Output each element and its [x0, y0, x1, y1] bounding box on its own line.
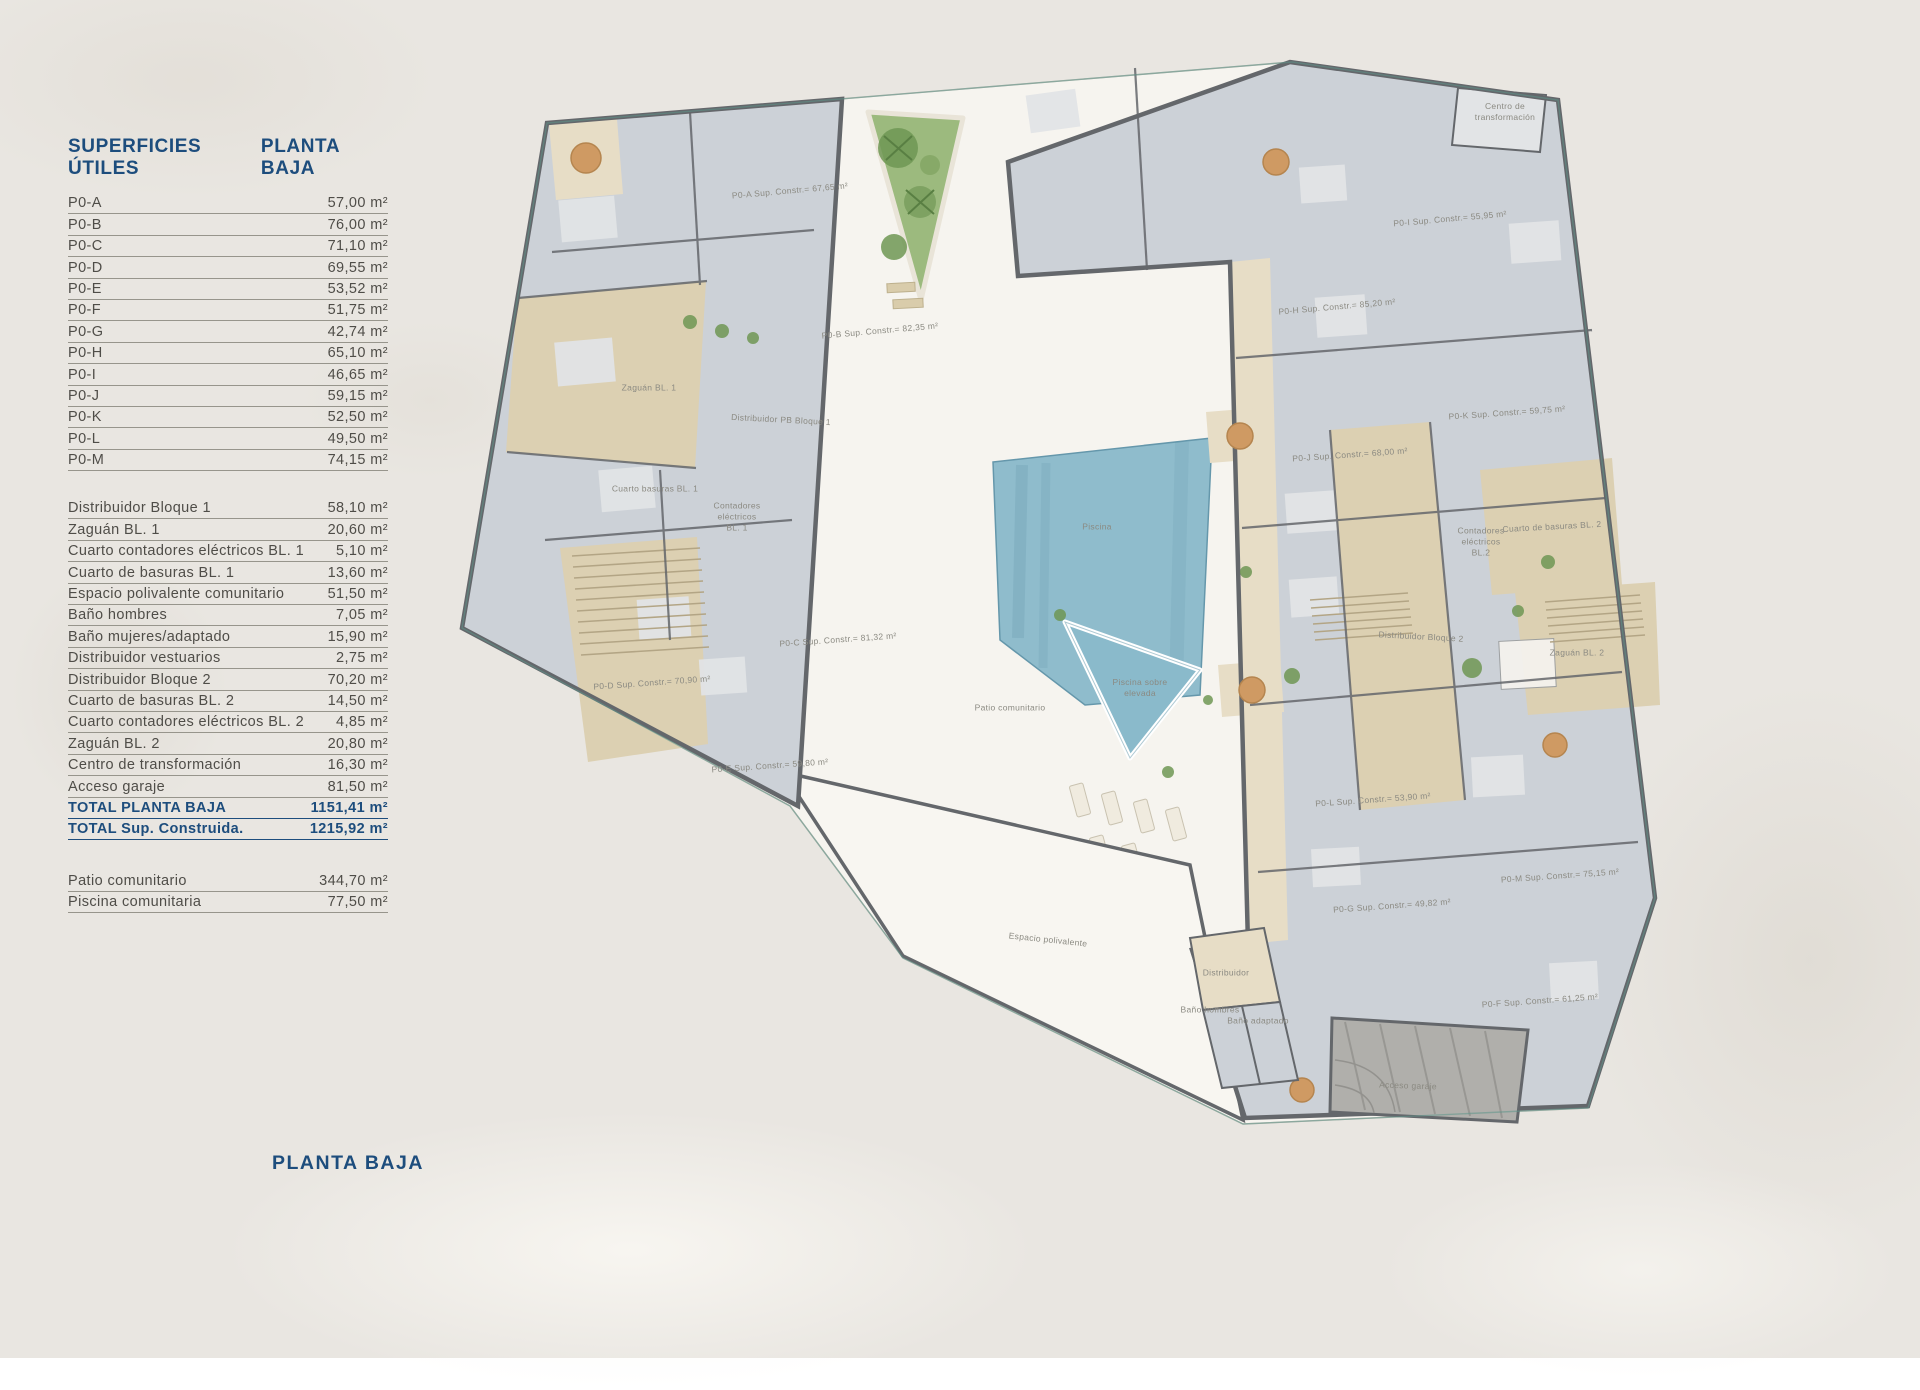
- plan-room-label: P0-D Sup. Constr.= 70,90 m²: [593, 673, 711, 692]
- plan-room-label: Piscina sobre elevada: [1113, 677, 1168, 699]
- plan-room-label: P0-I Sup. Constr.= 55,95 m²: [1393, 209, 1507, 230]
- plan-room-label: Distribuidor PB Bloque 1: [731, 412, 831, 428]
- plan-room-label: Acceso garaje: [1379, 1079, 1437, 1092]
- sheet: SUPERFICIES ÚTILES PLANTA BAJA P0-A 57,0…: [0, 0, 1920, 1358]
- plan-room-label: Distribuidor: [1203, 967, 1250, 978]
- plan-room-label: P0-H Sup. Constr.= 85,20 m²: [1278, 296, 1396, 317]
- plan-room-label: Cuarto de basuras BL. 2: [1502, 519, 1601, 535]
- plan-labels: P0-A Sup. Constr.= 67,65 m² P0-B Sup. Co…: [0, 0, 1920, 1358]
- plan-room-label: Patio comunitario: [975, 702, 1046, 713]
- plan-room-label: P0-B Sup. Constr.= 82,35 m²: [821, 320, 939, 341]
- plan-room-label: Zaguán BL. 1: [622, 382, 677, 393]
- plan-room-label: P0-L Sup. Constr.= 53,90 m²: [1315, 790, 1431, 809]
- plan-room-label: P0-J Sup. Constr.= 68,00 m²: [1292, 445, 1408, 464]
- plan-room-label: P0-C Sup. Constr.= 81,32 m²: [779, 630, 897, 649]
- plan-room-label: Espacio polivalente: [1008, 930, 1088, 949]
- plan-room-label: Cuarto basuras BL. 1: [612, 483, 698, 494]
- plan-room-label: Piscina: [1082, 521, 1112, 532]
- plan-room-label: Contadores eléctricos BL. 1: [714, 500, 761, 533]
- plan-room-label: P0-M Sup. Constr.= 75,15 m²: [1501, 866, 1620, 885]
- plan-room-label: Contadores eléctricos BL.2: [1458, 525, 1505, 558]
- plan-room-label: P0-K Sup. Constr.= 59,75 m²: [1448, 403, 1566, 422]
- plan-room-label: P0-G Sup. Constr.= 49,82 m²: [1333, 896, 1451, 915]
- plan-room-label: Distribuidor Bloque 2: [1378, 629, 1464, 644]
- plan-room-label: P0-F Sup. Constr.= 61,25 m²: [1481, 991, 1598, 1010]
- plan-room-label: P0-A Sup. Constr.= 67,65 m²: [731, 180, 848, 201]
- plan-room-label: Zaguán BL. 2: [1550, 647, 1605, 658]
- plan-room-label: Baño hombres: [1181, 1004, 1240, 1015]
- floor-plan: P0-A Sup. Constr.= 67,65 m² P0-B Sup. Co…: [0, 0, 1920, 1358]
- plan-room-label: Baño adaptado: [1227, 1015, 1289, 1026]
- plan-room-label: Centro de transformación: [1475, 101, 1535, 123]
- plan-room-label: P0-E Sup. Constr.= 59,80 m²: [711, 756, 829, 775]
